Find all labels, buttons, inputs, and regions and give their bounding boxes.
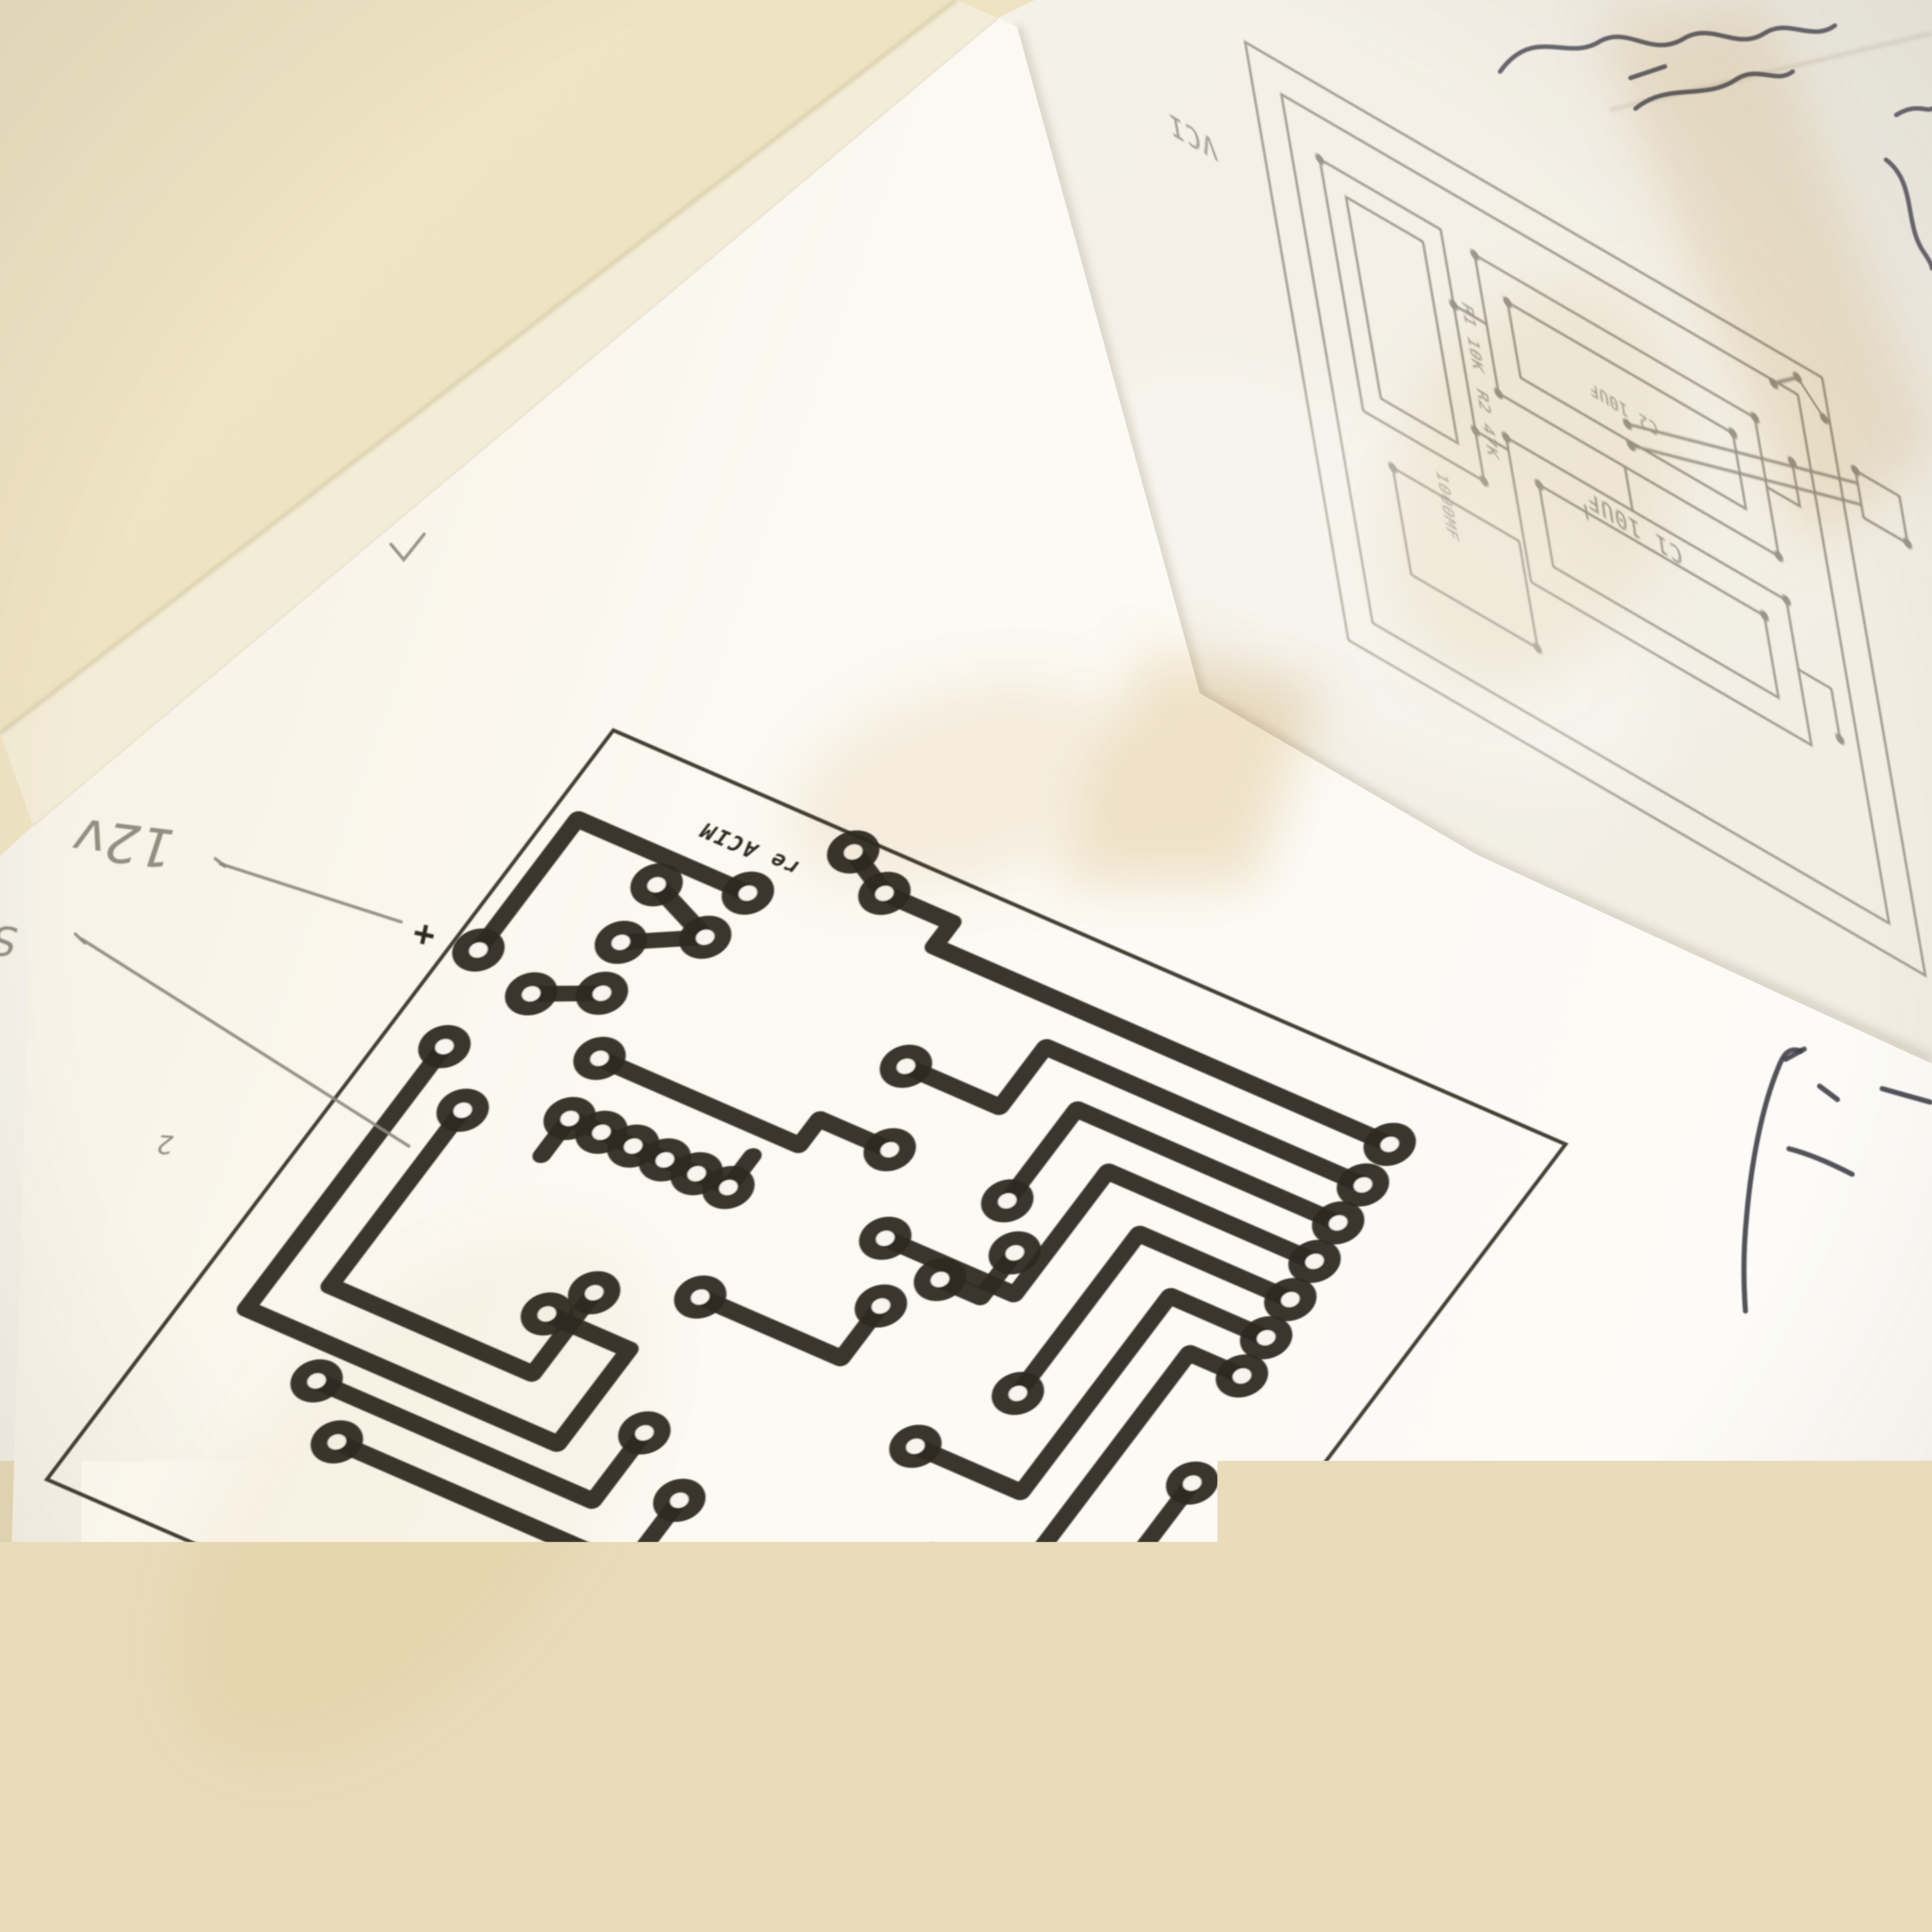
photo-vignette (0, 0, 1932, 1932)
photo-canvas: VCIC1 10UF+R1 10KR2 47K1000MFC2 10UFre A… (0, 0, 1932, 1932)
photo-pcb-printouts: VCIC1 10UF+R1 10KR2 47K1000MFC2 10UFre A… (0, 0, 1932, 1932)
